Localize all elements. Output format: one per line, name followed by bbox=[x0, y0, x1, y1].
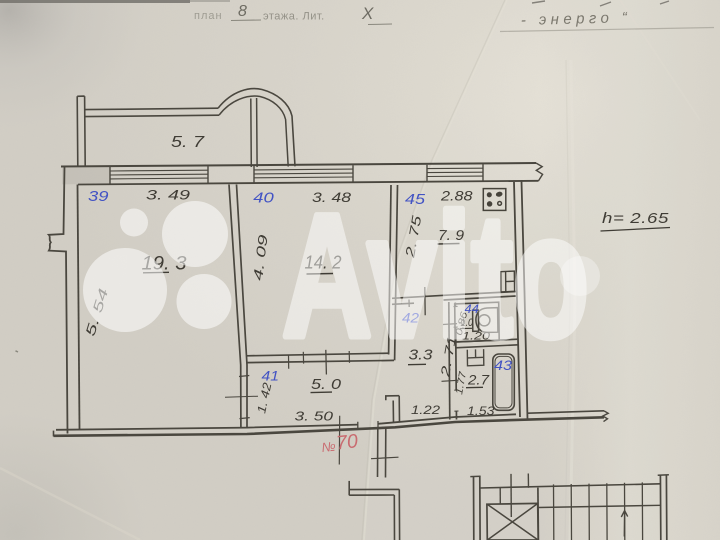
svg-text:h= 2.65: h= 2.65 bbox=[602, 210, 669, 227]
svg-text:5. 0: 5. 0 bbox=[311, 376, 342, 393]
svg-text:5. 7: 5. 7 bbox=[171, 134, 205, 151]
svg-text:3. 49: 3. 49 bbox=[146, 188, 191, 203]
svg-text:Avito: Avito bbox=[282, 179, 589, 374]
svg-text:этажа. Лит.: этажа. Лит. bbox=[263, 11, 325, 23]
svg-text:2.7: 2.7 bbox=[467, 373, 490, 388]
svg-text:3. 50: 3. 50 bbox=[295, 409, 335, 424]
svg-text:1.53: 1.53 bbox=[467, 404, 495, 418]
svg-text:план: план bbox=[194, 10, 223, 22]
svg-text:40: 40 bbox=[253, 190, 274, 207]
svg-text:70: 70 bbox=[335, 430, 359, 454]
svg-text:8: 8 bbox=[238, 3, 247, 20]
svg-text:X: X bbox=[361, 4, 374, 23]
svg-text:41: 41 bbox=[262, 369, 280, 384]
svg-text:1.22: 1.22 bbox=[411, 403, 440, 417]
svg-text:39: 39 bbox=[88, 188, 109, 205]
svg-text:№: № bbox=[321, 439, 337, 455]
